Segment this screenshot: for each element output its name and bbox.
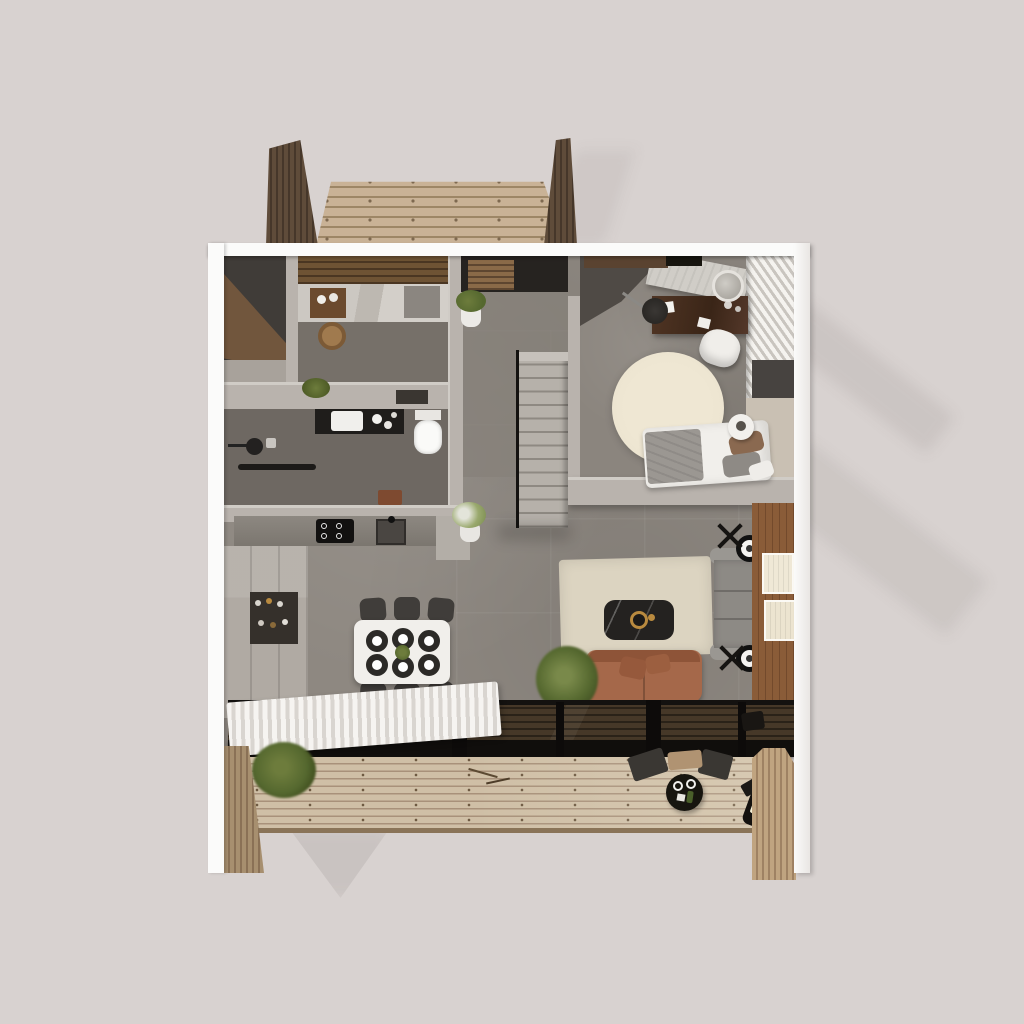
place-setting [418, 630, 440, 652]
deck-box [741, 711, 765, 732]
toilet-tank [415, 410, 441, 420]
leather-cushion [618, 656, 648, 681]
towel-bar [238, 464, 316, 470]
napkin [676, 793, 685, 801]
burner [321, 523, 327, 529]
plant-entry [454, 290, 488, 330]
terrace-bush [252, 742, 316, 798]
wall-bathrooms [224, 382, 455, 409]
picture-frame [764, 600, 796, 641]
brown-basket [378, 490, 402, 505]
closet-room [224, 256, 286, 398]
place-setting [366, 630, 388, 652]
leather-sofa [586, 650, 702, 702]
plant-ledge [302, 378, 330, 398]
jar [282, 619, 288, 625]
counter-wood-box [310, 288, 346, 318]
slat-wall-top-right [544, 138, 577, 245]
bathroom-window-wood [298, 256, 448, 286]
jar [277, 601, 283, 607]
table-plant [395, 645, 410, 660]
staircase [519, 352, 568, 528]
outdoor-bench [667, 750, 702, 771]
bedroom-black-band [666, 256, 702, 266]
desk-cup [735, 306, 741, 312]
jar [266, 598, 272, 604]
decor-item [648, 614, 655, 621]
bottle-green [686, 791, 694, 804]
desk-cup [724, 301, 732, 309]
cooktop [316, 519, 354, 543]
house-frame-right [794, 243, 810, 873]
faucet [388, 516, 395, 523]
vanity-counter [315, 408, 404, 434]
stair-landing [519, 352, 568, 361]
plant-leaves [456, 290, 486, 312]
shower-arm [228, 444, 248, 447]
decor-bowl [630, 611, 648, 629]
vanity-sink [331, 411, 363, 431]
bed [642, 416, 776, 491]
floorplan-render [0, 0, 1024, 1024]
picture-frame [762, 553, 794, 594]
burner [321, 533, 327, 539]
bedside-decor [736, 421, 746, 431]
shower-control [266, 438, 276, 448]
top-terrace-screws [316, 158, 566, 246]
shower-head [246, 438, 263, 455]
outdoor-table [666, 774, 703, 811]
dining-chair [359, 597, 387, 623]
jar [255, 600, 261, 606]
dining-table [354, 620, 450, 684]
wall-niche [396, 390, 428, 404]
bedroom-dark-panel [752, 360, 794, 400]
house-frame-left [208, 243, 224, 873]
slat-wall-bottom-right [752, 748, 796, 880]
coffee-table [604, 600, 674, 640]
dining-chair [394, 597, 420, 621]
kitchen-sink [376, 519, 406, 545]
cup [673, 781, 683, 791]
burner [336, 533, 342, 539]
leather-cushion [645, 653, 672, 675]
jar [270, 622, 276, 628]
bottle [329, 293, 338, 302]
stair-shadow [498, 524, 570, 540]
x-stool [714, 520, 746, 552]
plant-hall [452, 502, 488, 544]
toilet [414, 410, 442, 456]
cabinet-niche-shelf [250, 592, 298, 644]
desk-paper [697, 317, 711, 330]
place-setting [418, 654, 440, 676]
wall-closet-right [286, 256, 298, 398]
cosmetic [372, 414, 382, 424]
bottle [317, 295, 326, 304]
cosmetic [391, 412, 397, 418]
bedside-table [728, 414, 754, 440]
closet-wood-shelf [224, 274, 286, 370]
wall-bedroom-left [568, 296, 580, 477]
counter-sink-slab [404, 286, 440, 318]
deck-shadow-bottom [280, 828, 390, 898]
desk-lamp [642, 298, 668, 324]
stair-railing [516, 350, 519, 528]
bed-throw [644, 429, 703, 485]
cup [686, 779, 696, 789]
house-frame-top [208, 243, 810, 256]
glass-mullion [556, 702, 564, 757]
kitchen-cabinets-left [224, 546, 308, 718]
slat-wall-top-left [266, 140, 318, 246]
jar [258, 620, 264, 626]
entry-mat [468, 260, 514, 290]
x-stool [716, 642, 748, 674]
woven-basket [318, 322, 346, 350]
cosmetic [384, 421, 392, 429]
place-setting [366, 654, 388, 676]
plant-flowers [452, 502, 486, 528]
bedroom-wood-band [584, 256, 668, 268]
mirror [712, 270, 744, 302]
toilet-bowl [414, 420, 442, 454]
burner [336, 523, 342, 529]
terrace-front-edge [240, 828, 778, 833]
